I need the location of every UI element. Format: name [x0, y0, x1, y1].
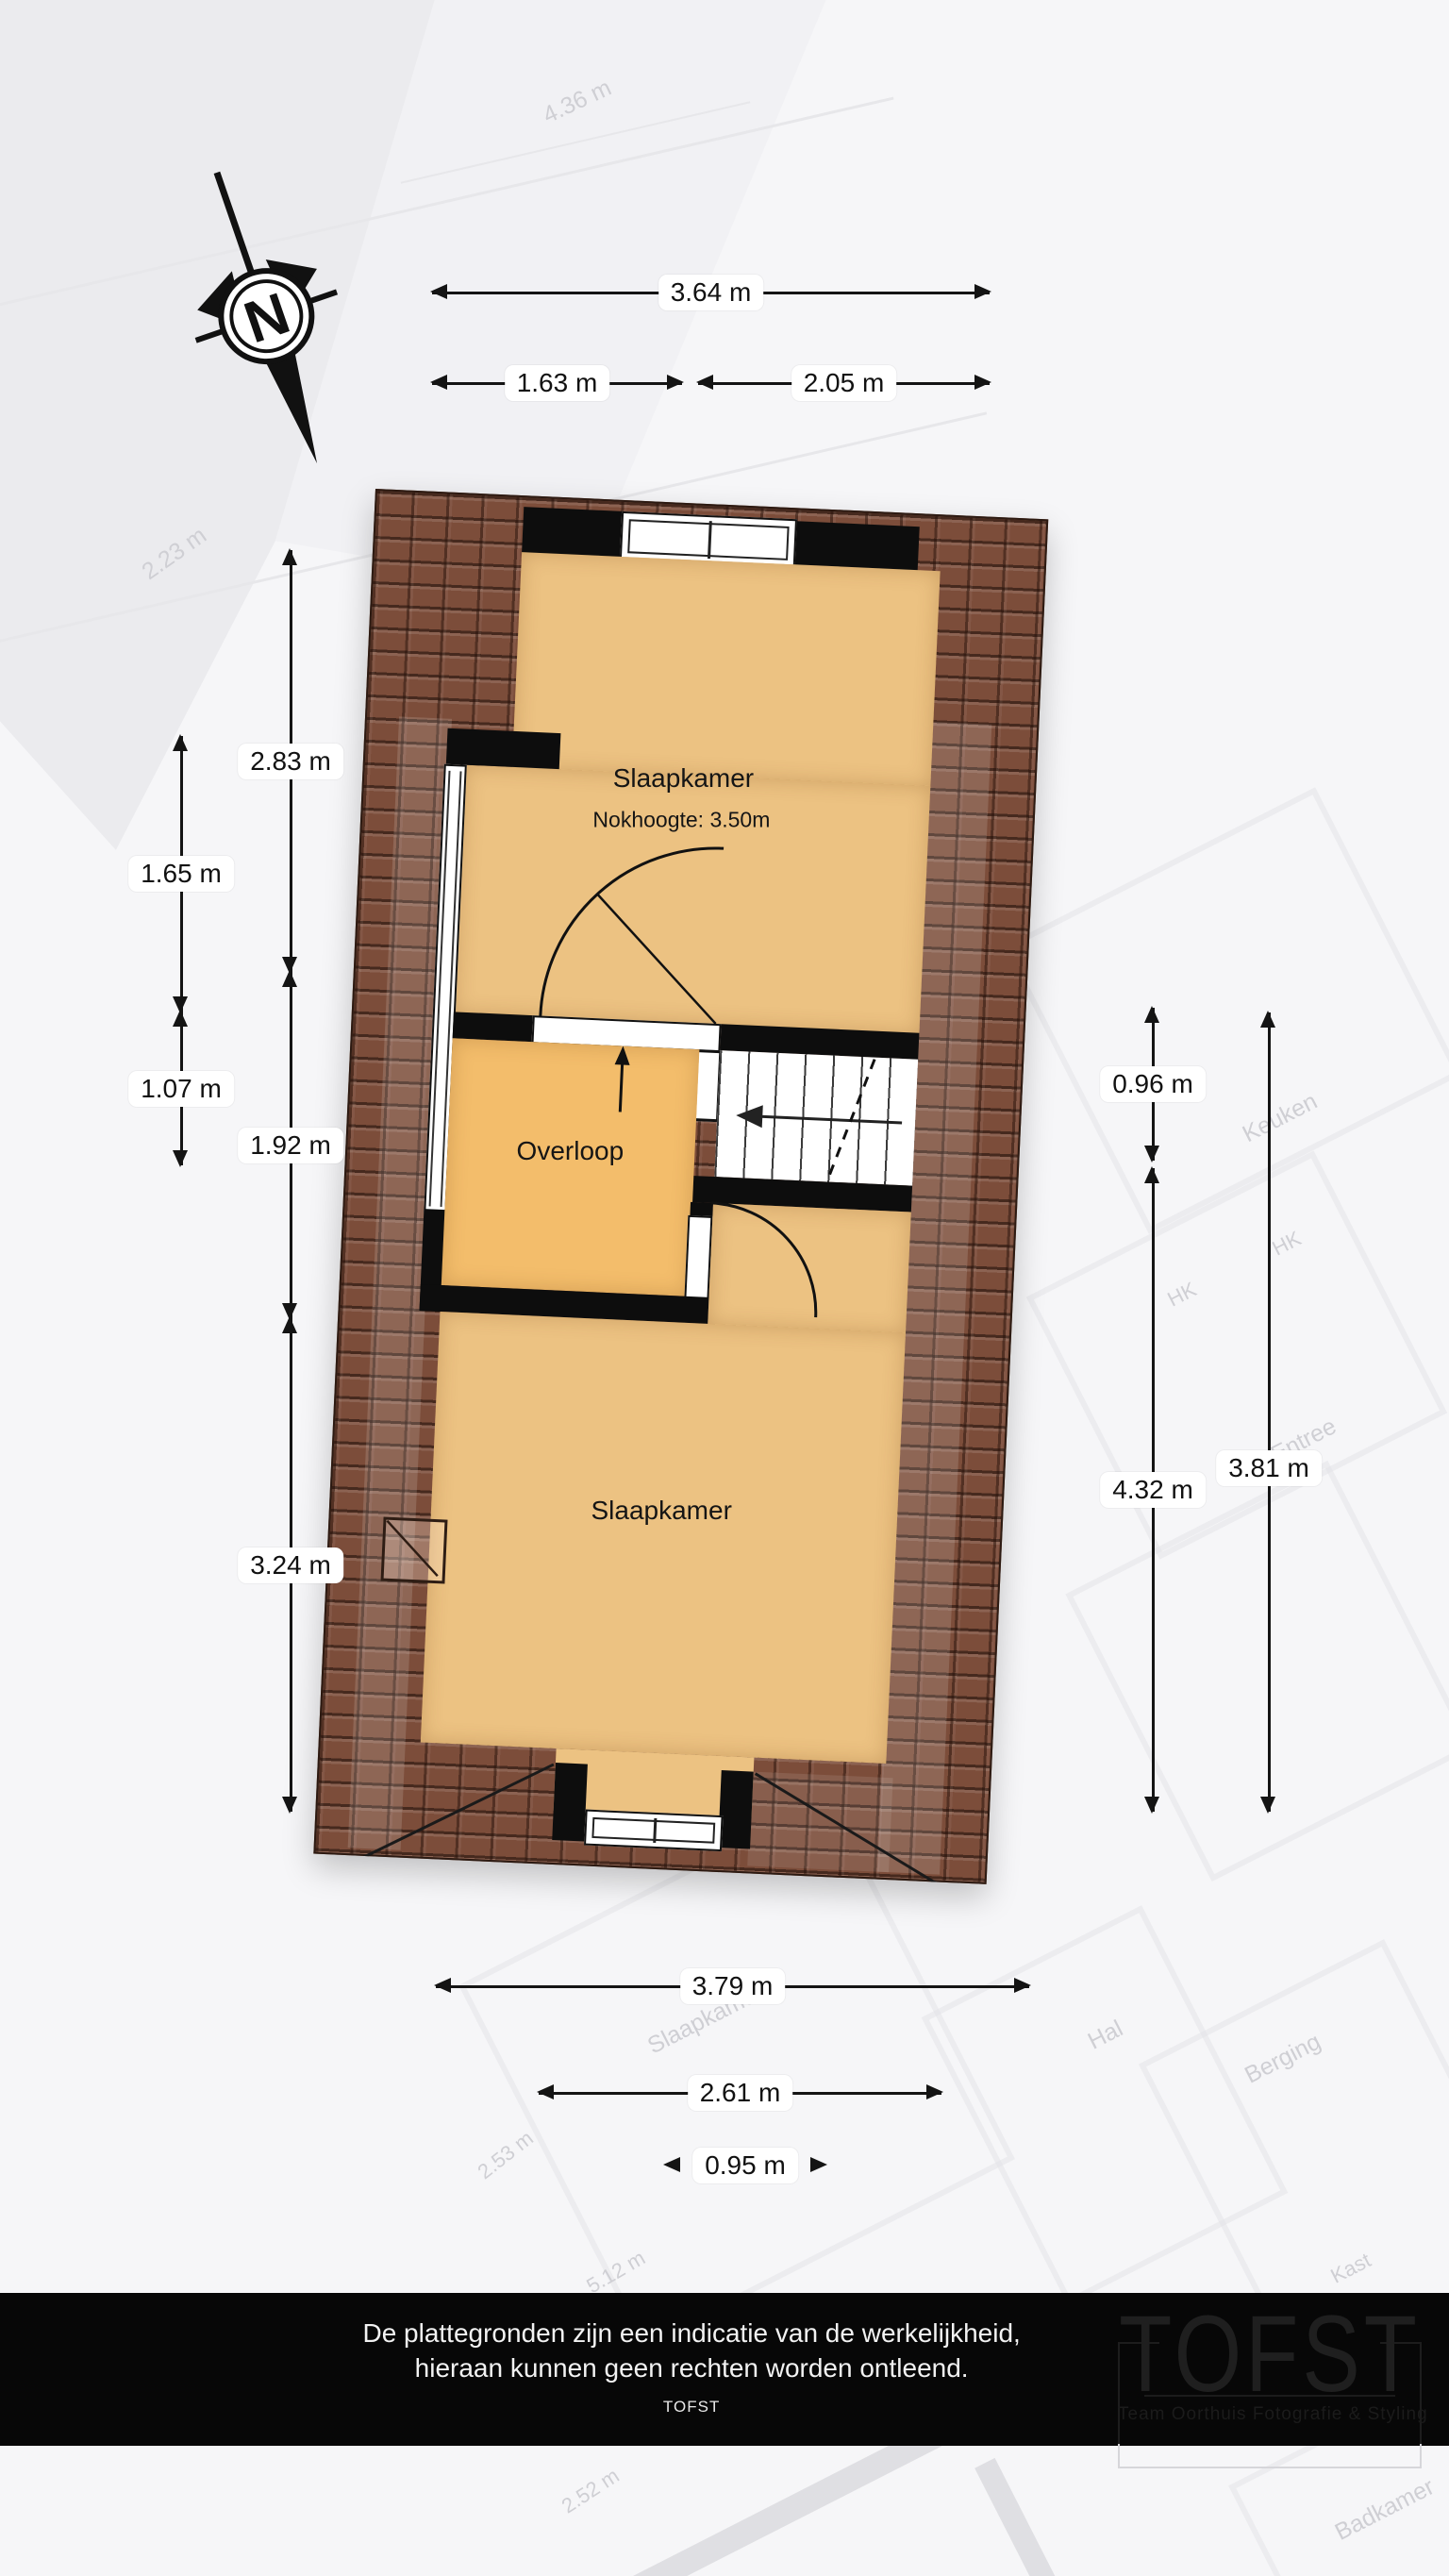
disclaimer-text: De plattegronden zijn een indicatie van …: [362, 2316, 1020, 2424]
background-room-outline: [1026, 1150, 1447, 1559]
background-room-outline: [1003, 787, 1449, 1234]
disclaimer-line-1: De plattegronden zijn een indicatie van …: [362, 2316, 1020, 2350]
arrowhead-down-icon: [1260, 1797, 1275, 1814]
arrowhead-down-icon: [173, 1150, 188, 1167]
arrowhead-up-icon: [282, 1316, 297, 1333]
dimension-label: 3.24 m: [238, 1547, 343, 1583]
dimension-label: 3.81 m: [1216, 1450, 1322, 1486]
dimension-label: 0.95 m: [692, 2148, 798, 2183]
arrowhead-up-icon: [1144, 1006, 1159, 1023]
arrowhead-up-icon: [1144, 1166, 1159, 1183]
arrowhead-right-icon: [667, 375, 684, 390]
arrowhead-right-icon: [1014, 1978, 1031, 1993]
arrowhead-up-icon: [282, 548, 297, 565]
disclaimer-line-2: hieraan kunnen geen rechten worden ontle…: [362, 2350, 1020, 2385]
dimension-label: 3.64 m: [658, 275, 764, 310]
arrowhead-down-icon: [282, 1797, 297, 1814]
arrowhead-up-icon: [173, 1010, 188, 1027]
arrowhead-up-icon: [282, 970, 297, 987]
dimension-label: 1.65 m: [128, 856, 234, 892]
background-label: 2.53 m: [473, 2126, 538, 2184]
arrowhead-right-icon: [926, 2084, 943, 2099]
arrowhead-down-icon: [1144, 1797, 1159, 1814]
plan-line-overlay: [313, 489, 1048, 1884]
arrowhead-up-icon: [173, 734, 188, 751]
background-label: 2.52 m: [558, 2464, 625, 2518]
arrowhead-right-icon: [974, 375, 991, 390]
arrowhead-left-icon: [434, 1978, 451, 1993]
dimension-label: 0.96 m: [1100, 1066, 1206, 1102]
arrowhead-down-icon: [1144, 1146, 1159, 1163]
dimension-label: 1.92 m: [238, 1128, 343, 1163]
watermark-rule: [1144, 2395, 1395, 2397]
dimension-label: 2.61 m: [688, 2075, 793, 2111]
dimension-label: 4.32 m: [1100, 1472, 1206, 1508]
landing-label: Overloop: [517, 1136, 625, 1166]
attic-floorplan: Slaapkamer Nokhoogte: 3.50m Overloop Sla…: [313, 489, 1048, 1884]
watermark-subtitle: Team Oorthuis Fotografie & Styling: [1118, 2404, 1422, 2425]
dimension-label: 3.79 m: [680, 1968, 786, 2004]
disclaimer-brand: TOFST: [362, 2389, 1020, 2424]
tofst-watermark-logo: TOFST Team Oorthuis Fotografie & Styling: [1118, 2304, 1422, 2474]
dimension-label: 1.63 m: [505, 365, 610, 401]
arrowhead-left-icon: [430, 284, 447, 299]
arrowhead-up-icon: [1260, 1011, 1275, 1028]
arrowhead-right-icon: [974, 284, 991, 299]
watermark-title: TOFST: [1119, 2293, 1421, 2417]
bedroom-top-ridge-height: Nokhoogte: 3.50m: [592, 808, 770, 833]
floorplan-page: 4.36 m 2.23 m Keuken HK HK Entree Slaapk…: [0, 0, 1449, 2576]
dimension-label: 2.05 m: [791, 365, 897, 401]
background-wall-band: [974, 2458, 1076, 2576]
arrowhead-right-icon: [810, 2157, 827, 2172]
arrowhead-left-icon: [696, 375, 713, 390]
background-room-outline: [1065, 1461, 1449, 1882]
arrowhead-left-icon: [430, 375, 447, 390]
bedroom-bottom-label: Slaapkamer: [591, 1496, 731, 1526]
bedroom-top-label: Slaapkamer: [613, 763, 754, 794]
arrowhead-left-icon: [537, 2084, 554, 2099]
arrowhead-left-icon: [663, 2157, 680, 2172]
dimension-label: 1.07 m: [128, 1071, 234, 1107]
dimension-label: 2.83 m: [238, 744, 343, 779]
